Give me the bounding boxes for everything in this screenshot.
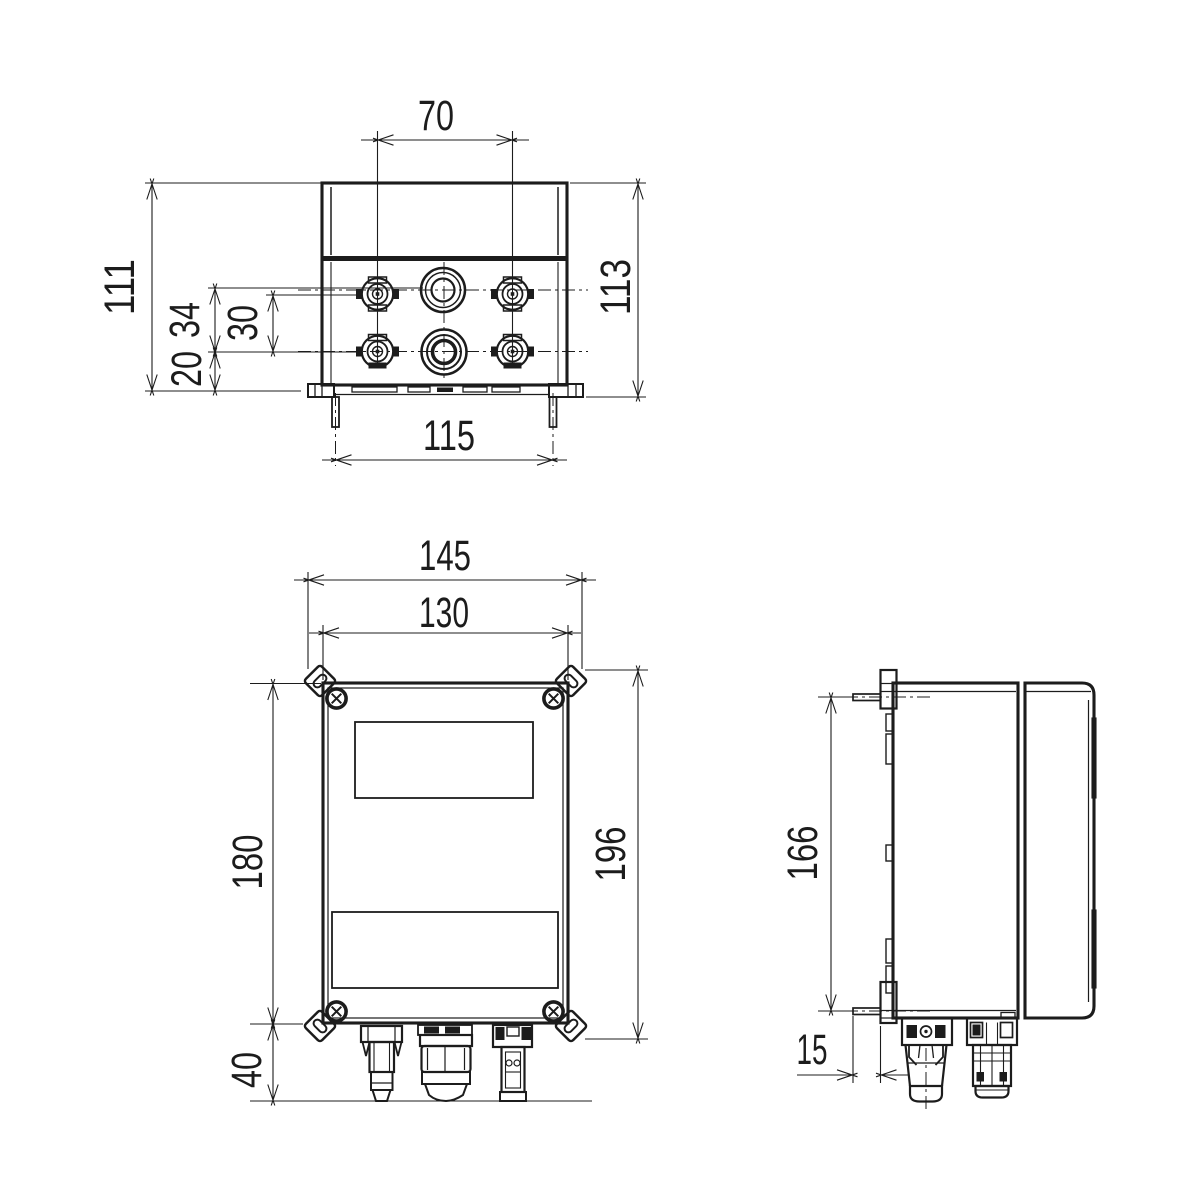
dim-label-180: 180 [224,835,272,890]
lid-screw-top-left [327,689,346,708]
dim-label-40: 40 [223,1052,271,1088]
dim-label-111: 111 [96,259,144,315]
dim-label-15: 15 [797,1026,828,1074]
mounting-bracket-left [308,384,339,427]
mc4-connector-side [967,1013,1017,1098]
top-view: 70 111 34 30 20 [96,92,646,466]
cable-gland-side [902,1018,952,1102]
mc4-plug-front [361,1026,402,1101]
wall-tab-top [853,670,897,709]
cable-gland-front [418,1025,472,1101]
mounting-tab-bottom-left [304,1010,337,1043]
dim-label-130: 130 [419,589,469,637]
lid-side [1025,683,1094,1018]
side-view-centerlines [845,697,930,1110]
lid-screw-top-right [544,689,563,708]
wall-tab-bottom [853,982,897,1023]
label-plate-top [355,722,533,798]
dim-label-70: 70 [418,92,454,140]
technical-drawing: 70 111 34 30 20 [0,0,1200,1200]
drawing-sheet: 70 111 34 30 20 [0,0,1200,1200]
dim-label-20: 20 [163,351,211,387]
dim-label-30: 30 [219,305,267,341]
front-view-dimensions: 145 130 180 196 [223,532,648,1106]
dim-label-113: 113 [592,259,640,315]
front-view: 145 130 180 196 [223,532,648,1106]
dim-label-34: 34 [161,302,209,338]
dim-label-115: 115 [423,412,475,460]
enclosure-front-outline [323,683,568,1023]
mounting-bracket-right [549,384,583,427]
dim-label-145: 145 [419,532,471,580]
mounting-tab-bottom-right [555,1010,588,1043]
mc4-socket-front [493,1025,532,1101]
dim-label-196: 196 [587,827,635,882]
dim-label-166: 166 [779,826,827,881]
side-view-dimensions: 166 15 [779,693,908,1084]
side-view: 166 15 [779,670,1096,1110]
label-plate-bottom [332,912,558,988]
enclosure-side-outline [886,683,1096,1018]
